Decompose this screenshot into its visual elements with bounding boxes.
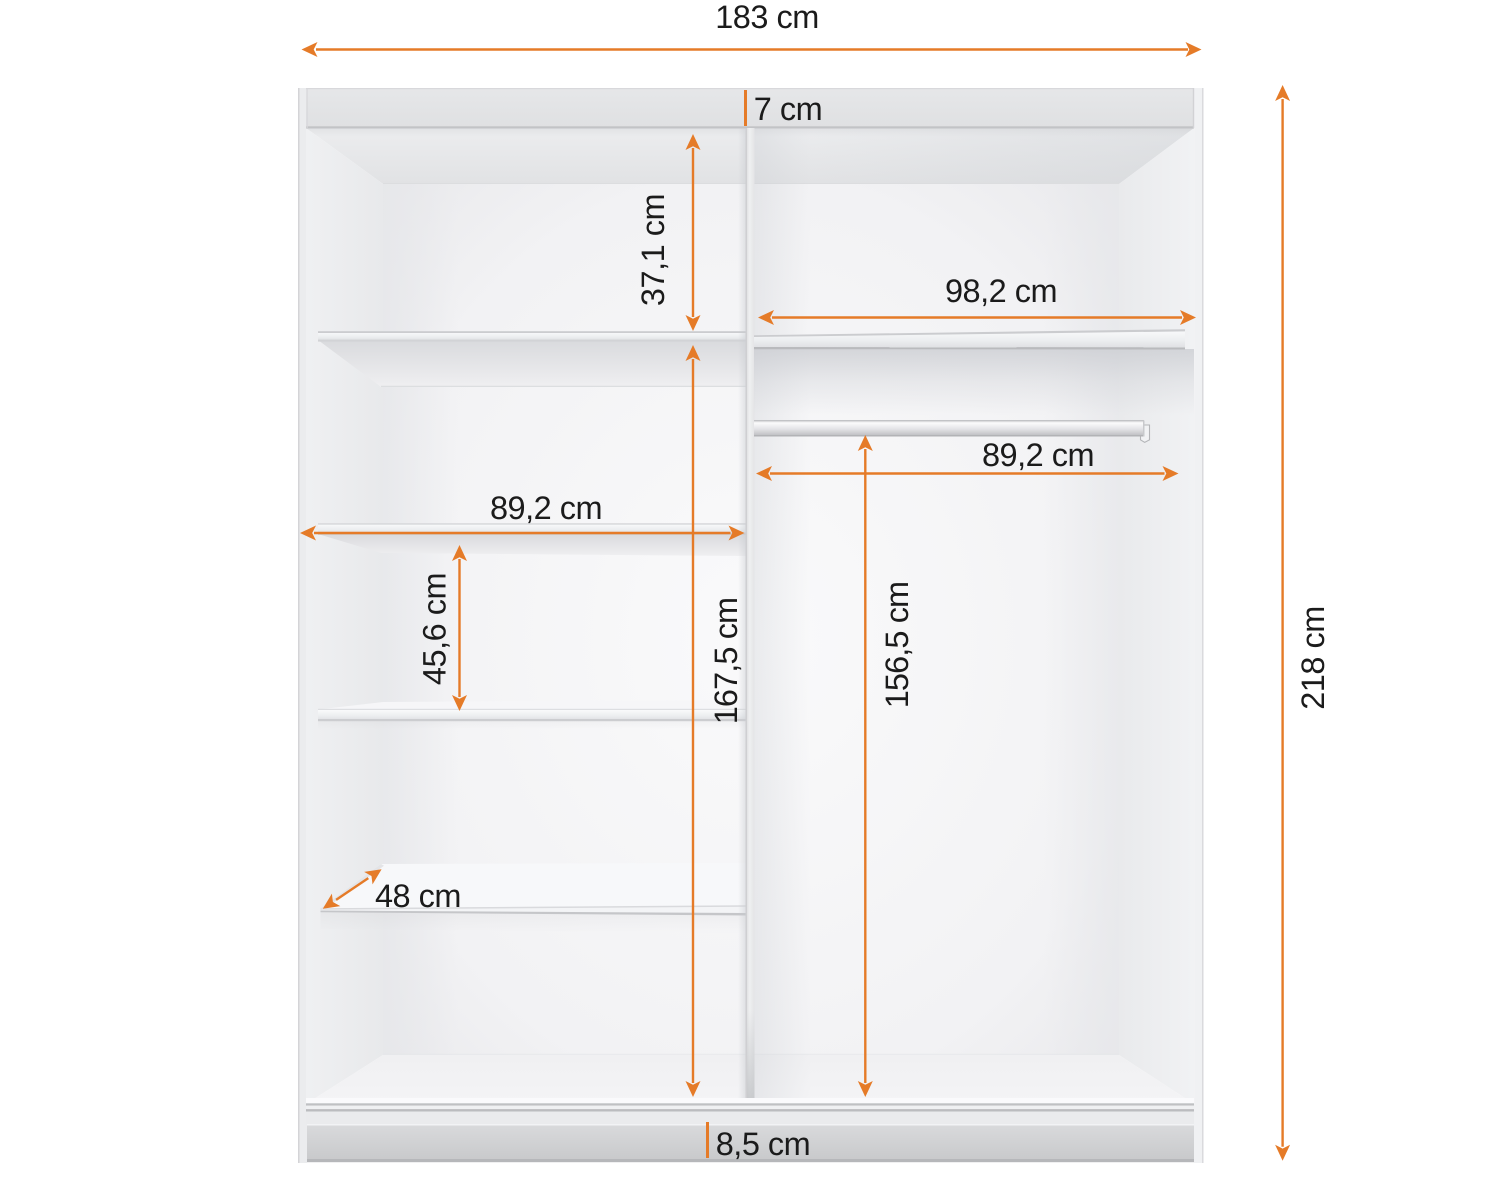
- svg-text:37,1 cm: 37,1 cm: [635, 194, 671, 306]
- svg-text:7 cm: 7 cm: [754, 91, 822, 127]
- svg-text:156,5 cm: 156,5 cm: [879, 582, 915, 708]
- svg-text:48 cm: 48 cm: [375, 878, 461, 914]
- svg-text:218 cm: 218 cm: [1295, 606, 1331, 710]
- svg-text:183 cm: 183 cm: [715, 0, 819, 35]
- svg-text:45,6 cm: 45,6 cm: [417, 573, 453, 685]
- svg-text:98,2 cm: 98,2 cm: [945, 273, 1057, 309]
- svg-text:89,2 cm: 89,2 cm: [490, 490, 602, 526]
- svg-text:89,2 cm: 89,2 cm: [982, 437, 1094, 473]
- svg-text:8,5 cm: 8,5 cm: [716, 1126, 811, 1162]
- svg-text:167,5 cm: 167,5 cm: [708, 598, 744, 724]
